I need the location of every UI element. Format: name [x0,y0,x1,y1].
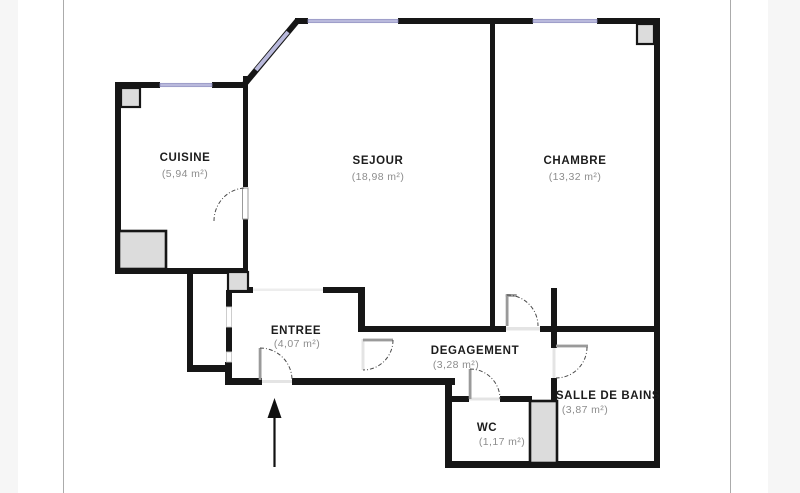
bathroom-door-swing-icon [556,345,588,378]
pillar-icon [121,88,140,107]
room-label-entree: ENTREE [271,325,321,337]
windows [160,18,597,88]
entrance-arrow-icon [268,398,282,467]
degagement-door-swing-icon [363,339,393,370]
room-area-degagement: (3,28 m²) [433,359,479,371]
floor-plan-drawing [0,0,800,493]
pillar-icon [119,231,166,269]
room-area-wc: (1,17 m²) [479,436,525,448]
room-label-chambre: CHAMBRE [544,155,607,167]
kitchen-window-icon [160,82,212,88]
doors [214,188,588,399]
room-label-degagement: DEGAGEMENT [431,345,519,357]
kitchen-door-swing-icon [214,188,248,221]
room-area-cuisine: (5,94 m²) [162,168,208,180]
front-door-swing-icon [259,348,292,380]
room-area-entree: (4,07 m²) [274,338,320,350]
floor-plan: CUISINE (5,94 m²) SEJOUR (18,98 m²) CHAM… [0,0,800,493]
pillar-icon [637,24,654,44]
sejour-window-icon [308,18,398,24]
room-area-sejour: (18,98 m²) [352,171,404,183]
room-area-salle-de-bains: (3,87 m²) [562,404,608,416]
wc-door-swing-icon [469,369,500,399]
room-area-chambre: (13,32 m²) [549,171,601,183]
duct-shaft-icon [530,401,557,463]
diagonal-wall [243,20,298,86]
chambre-door-swing-icon [506,294,538,326]
room-label-wc: WC [477,422,497,434]
chambre-window-icon [533,18,597,24]
room-label-sejour: SEJOUR [353,155,404,167]
room-label-salle-de-bains: SALLE DE BAINS [556,390,660,402]
pillar-icon [228,272,248,291]
room-label-cuisine: CUISINE [160,152,211,164]
